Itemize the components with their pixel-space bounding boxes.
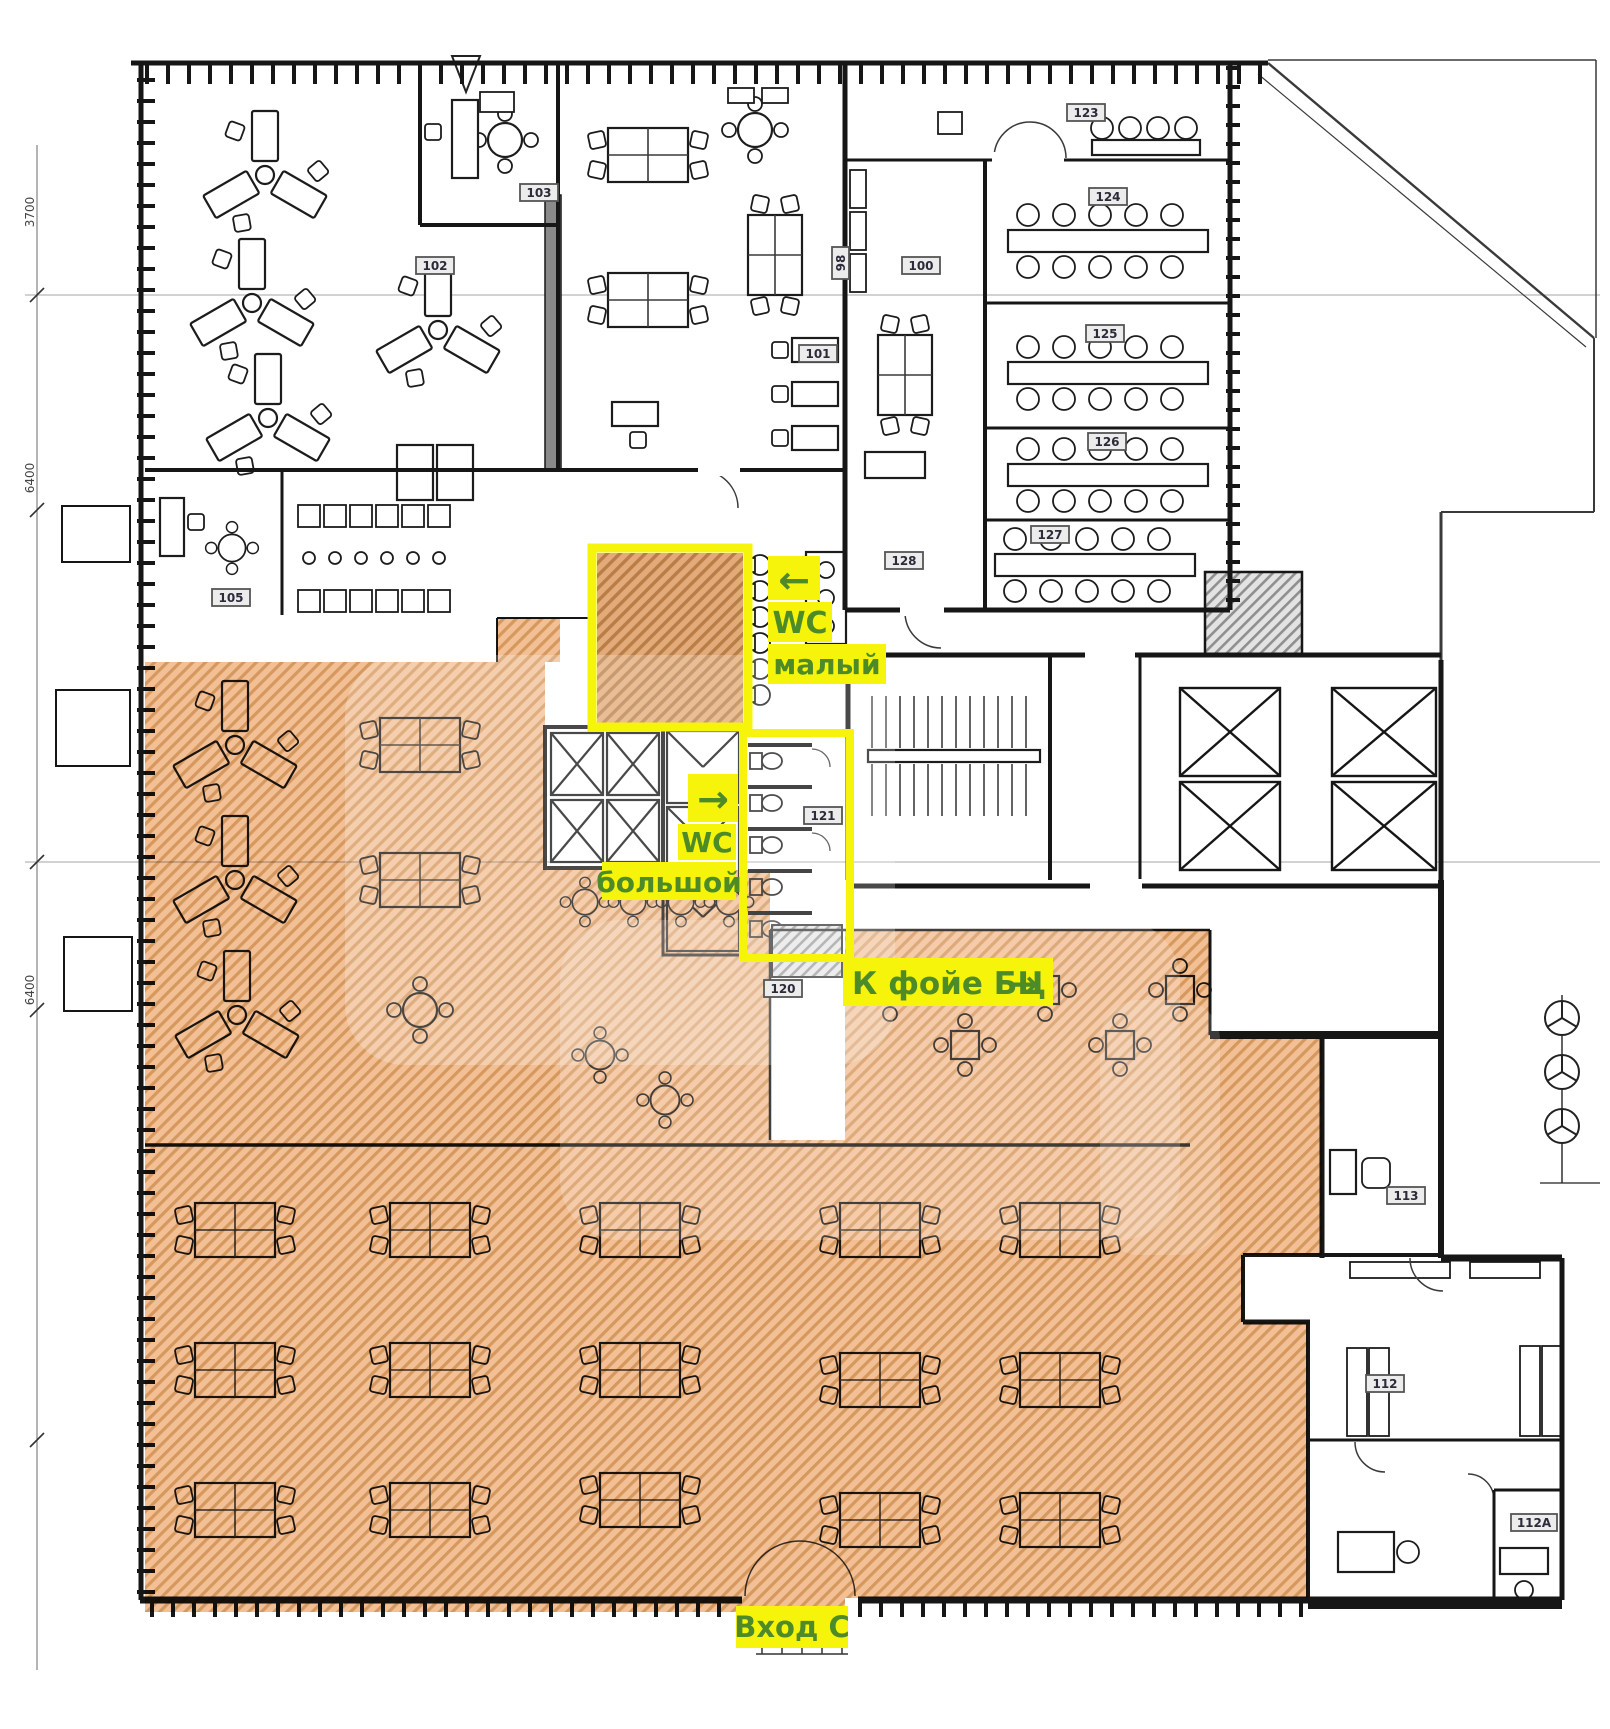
svg-text:120: 120 — [770, 982, 795, 996]
exterior-stair-hatch — [1205, 572, 1302, 656]
svg-text:103: 103 — [526, 186, 551, 200]
entrance-label-text: Вход С — [734, 1610, 850, 1644]
locker-rows — [298, 505, 450, 612]
svg-text:126: 126 — [1094, 435, 1119, 449]
room-number-chip-124: 124 — [1089, 188, 1127, 205]
column-markers — [1540, 995, 1600, 1183]
room-number-chip-127: 127 — [1031, 526, 1069, 543]
svg-text:128: 128 — [891, 554, 916, 568]
wc-small-label-line1: WC — [772, 606, 827, 641]
svg-text:105: 105 — [218, 591, 243, 605]
svg-text:124: 124 — [1095, 190, 1120, 204]
dimension-label: 6400 — [23, 975, 37, 1006]
wc-small-label-line2: малый — [773, 648, 880, 681]
to-foyer-label: К фойе БЦ → — [843, 958, 1053, 1006]
room-number-chip-101: 101 — [799, 345, 837, 362]
floor-plan-page: 3700 6400 6400 — [0, 0, 1610, 1729]
svg-text:102: 102 — [422, 259, 447, 273]
room-number-chip-112: 112 — [1366, 1375, 1404, 1392]
room-number-chip-105: 105 — [212, 589, 250, 606]
arrow-right-icon: → — [1008, 964, 1038, 1005]
room-number-chip-123: 123 — [1067, 104, 1105, 121]
svg-text:113: 113 — [1393, 1189, 1418, 1203]
arrow-left-icon: ← — [778, 558, 810, 602]
svg-text:127: 127 — [1037, 528, 1062, 542]
svg-text:123: 123 — [1073, 106, 1098, 120]
floor-plan-image: 3700 6400 6400 — [0, 0, 1610, 1729]
room-number-chip-112A: 112A — [1511, 1514, 1557, 1531]
svg-text:100: 100 — [908, 259, 933, 273]
arrow-right-icon: → — [697, 777, 729, 821]
room-number-chip-103: 103 — [520, 184, 558, 201]
room-number-chip-126: 126 — [1088, 433, 1126, 450]
svg-text:112: 112 — [1372, 1377, 1397, 1391]
room-number-chip-98: 98 — [832, 247, 849, 279]
elevator-bank — [1180, 688, 1436, 870]
room-number-chip-128: 128 — [885, 552, 923, 569]
room-number-chip-120: 120 — [764, 980, 802, 997]
svg-text:125: 125 — [1092, 327, 1117, 341]
room-number-chip-125: 125 — [1086, 325, 1124, 342]
dimension-label: 3700 — [23, 197, 37, 228]
room-number-chip-113: 113 — [1387, 1187, 1425, 1204]
svg-text:98: 98 — [834, 255, 848, 272]
svg-text:101: 101 — [805, 347, 830, 361]
svg-text:121: 121 — [810, 809, 835, 823]
svg-text:112A: 112A — [1517, 1516, 1552, 1530]
wc-large-label-line1: WC — [681, 826, 732, 859]
wc-large-label-line2: большой — [596, 866, 742, 899]
entrance-label: Вход С — [734, 1606, 850, 1648]
room-number-chip-102: 102 — [416, 257, 454, 274]
room-number-chip-121: 121 — [804, 807, 842, 824]
dimension-label: 6400 — [23, 463, 37, 494]
room-number-chip-100: 100 — [902, 257, 940, 274]
